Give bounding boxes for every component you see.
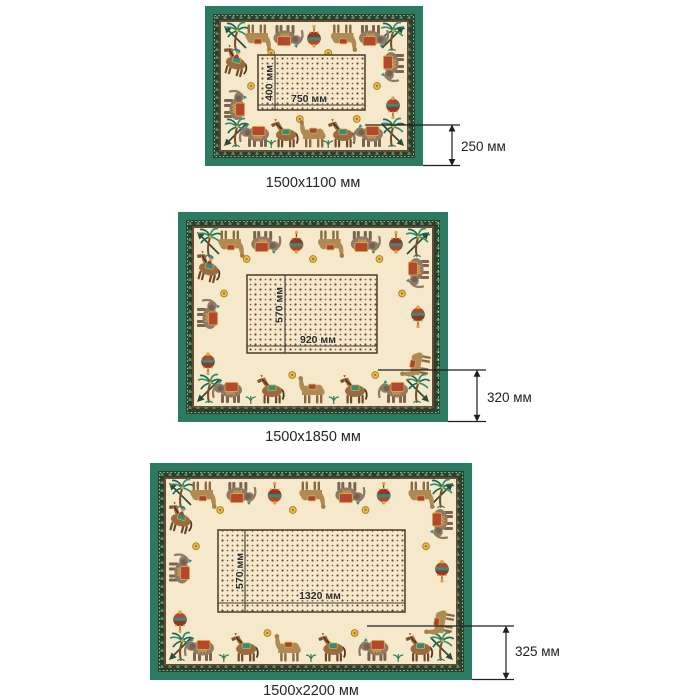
gold-icon bbox=[221, 290, 228, 297]
gold-icon bbox=[376, 256, 383, 263]
gold-icon bbox=[243, 256, 250, 263]
table-width-label: 1320 мм bbox=[299, 590, 341, 602]
size-diagram-svg: 400 мм 750 мм 250 мм 1500x1100 мм 570 мм… bbox=[0, 0, 700, 700]
arrow-down-icon bbox=[503, 673, 510, 680]
drop-label: 320 мм bbox=[487, 390, 532, 405]
gold-icon bbox=[310, 256, 317, 263]
size-caption-1500x1850: 1500x1850 мм bbox=[265, 429, 361, 445]
arrow-up-icon bbox=[474, 370, 481, 377]
gold-icon bbox=[399, 290, 406, 297]
drop-label: 325 мм bbox=[515, 644, 560, 659]
size-caption-1500x1100: 1500x1100 мм bbox=[266, 175, 361, 191]
tablecloth-1500x1100: 400 мм 750 мм bbox=[205, 6, 423, 166]
gold-icon bbox=[264, 630, 271, 637]
gold-icon bbox=[372, 372, 379, 379]
drop-label: 250 мм bbox=[461, 139, 506, 154]
gold-icon bbox=[423, 543, 430, 550]
tablecloth-1500x2200: 570 мм 1320 мм bbox=[150, 463, 472, 680]
table-height-label: 400 мм bbox=[264, 65, 276, 101]
gold-icon bbox=[374, 83, 381, 90]
size-caption-1500x2200: 1500x2200 мм bbox=[263, 683, 359, 699]
table-width-label: 920 мм bbox=[300, 334, 336, 346]
gold-icon bbox=[351, 630, 358, 637]
gold-icon bbox=[217, 507, 224, 514]
table-height-label: 570 мм bbox=[234, 553, 246, 589]
gold-icon bbox=[248, 83, 255, 90]
tablecloth-size-chart: 400 мм 750 мм 250 мм 1500x1100 мм 570 мм… bbox=[0, 0, 700, 700]
arrow-down-icon bbox=[474, 415, 481, 422]
table-height-label: 570 мм bbox=[274, 287, 286, 323]
arrow-up-icon bbox=[503, 626, 510, 633]
gold-icon bbox=[362, 507, 369, 514]
gold-icon bbox=[353, 116, 360, 123]
gold-icon bbox=[289, 372, 296, 379]
tablecloth-1500x1850: 570 мм 920 мм bbox=[178, 212, 448, 422]
table-width-label: 750 мм bbox=[291, 93, 327, 105]
gold-icon bbox=[289, 507, 296, 514]
gold-icon bbox=[193, 543, 200, 550]
